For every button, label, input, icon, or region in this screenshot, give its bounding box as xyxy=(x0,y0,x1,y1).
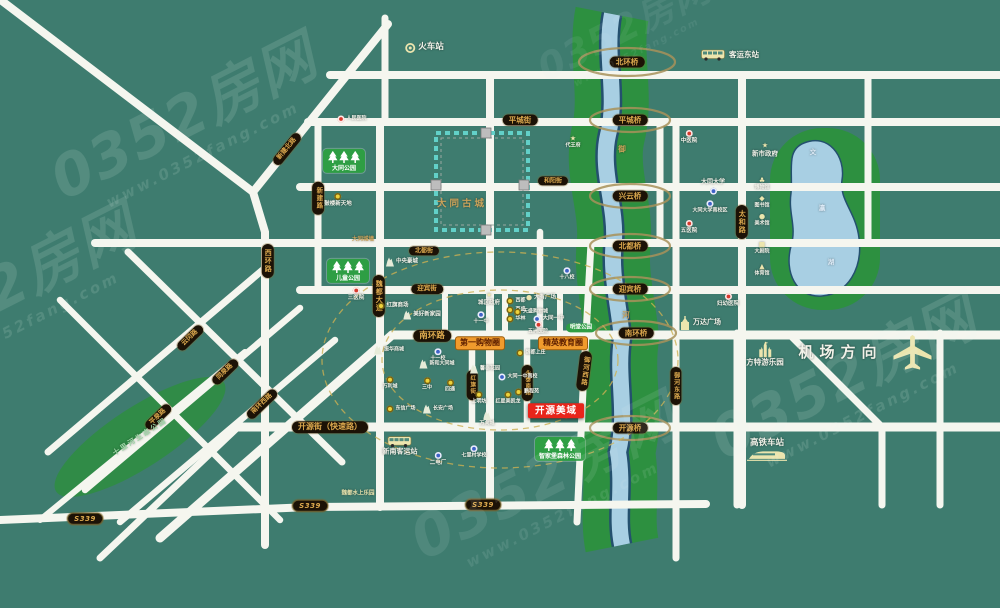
road-nanhuanxilu: 南环西路 xyxy=(245,387,279,420)
poi-new-city-gov: ★新市政府 xyxy=(752,142,778,157)
poi-zhongyiyuan-label: 中医院 xyxy=(681,138,698,144)
poi-wanlicheng: 万利城 xyxy=(382,376,397,390)
poi-university-south-icon xyxy=(706,200,713,207)
river-char-he: 河 xyxy=(622,311,630,320)
poi-wanxiangcheng-label: 万向城 xyxy=(479,421,494,427)
poi-daiwangfu-label: 代王府 xyxy=(565,143,580,149)
park-mingtang: 明堂公园 xyxy=(566,323,596,332)
road-yuhedonglu: 御河东路 xyxy=(670,367,681,405)
poi-renmin-hospital: 人民医院 xyxy=(337,116,366,123)
poi-wuzhou-hospital-label: 五洲医院 xyxy=(528,329,548,335)
fantawild-park-icon xyxy=(756,341,774,357)
poi-tiansheng-mall-icon xyxy=(514,309,521,316)
train-station-icon xyxy=(404,42,416,54)
poi-hualin-label: 华林 xyxy=(515,316,525,322)
poi-daiwangfu: ★代王府 xyxy=(565,135,580,149)
poi-xintai-garden-icon xyxy=(470,365,478,374)
poi-chengqu-gov-label: 城区政府 xyxy=(478,300,500,306)
trees-icon xyxy=(327,151,361,165)
hsr-station-icon xyxy=(747,449,787,463)
poi-pengchengyuan-label: 鹏程苑 xyxy=(524,389,539,395)
poi-hongqi-mall-label: 红旗商场 xyxy=(386,303,408,309)
poi-new-city-gov-label: 新市政府 xyxy=(752,150,778,157)
poi-baisheng-icon xyxy=(506,307,513,314)
park-ertong-label: 儿童公园 xyxy=(336,275,360,282)
poi-renmin-hospital-label: 人民医院 xyxy=(346,116,366,122)
poi-erdianchang-icon xyxy=(434,452,441,459)
road-nanhuanlu: 南环路 xyxy=(413,330,451,342)
poi-shiyizhong-label: 十一中 xyxy=(473,319,488,325)
poi-wanxiangcheng: 万向城 xyxy=(479,411,494,427)
city-wall-label: 大同城墙 xyxy=(352,237,374,244)
poi-datong-university-icon xyxy=(709,187,716,194)
bridge-nanhuanqiao: 南环桥 xyxy=(619,328,654,339)
airport-direction: 机场方向 xyxy=(798,333,933,371)
poi-art-gallery-label: 美术馆 xyxy=(754,221,769,227)
poi-wanlicheng-label: 万利城 xyxy=(382,384,397,390)
bridge-kaiyuanqiao: 开源桥 xyxy=(613,423,648,434)
poi-hongxing-icon xyxy=(504,391,511,398)
bridge-beiduqiao: 北都桥 xyxy=(613,241,648,252)
shield-s339-east: S339 xyxy=(465,499,501,511)
poi-shangmingfang-icon xyxy=(475,391,482,398)
poi-xinhe-datongcheng: 新和大同城 xyxy=(419,360,454,369)
poi-meihao-xinjiayuan-label: 美好新家园 xyxy=(413,312,441,318)
road-xinjianlu: 新建路 xyxy=(312,182,324,215)
park-datong: 大同公园 xyxy=(323,149,365,173)
trees-icon xyxy=(543,439,577,453)
river-char-yu: 御 xyxy=(618,145,626,154)
poi-sitong-icon xyxy=(446,379,453,386)
poi-grand-theater-icon: ■ xyxy=(759,241,766,248)
poi-sanzhong-icon xyxy=(423,377,430,384)
road-yuhexilu: 御河西路 xyxy=(576,350,593,391)
poi-yizhong-south-icon xyxy=(498,374,505,381)
poi-qilicun-school: 七里村学校 xyxy=(461,445,486,459)
poi-zhongyang-haocheng: 中央豪城 xyxy=(386,258,418,267)
poi-hualin-icon xyxy=(506,316,513,323)
poi-university-south: 大同大学南校区 xyxy=(692,200,727,214)
poi-weidu-shangzhuang-label: 魏都上庄 xyxy=(525,350,545,356)
road-heyangjie: 和阳街 xyxy=(538,176,568,185)
poi-yizhong-south: 大同一中南校 xyxy=(498,374,537,381)
road-tongquanlu: 同泉路 xyxy=(210,358,239,387)
wanda-plaza-icon xyxy=(679,316,691,330)
poi-dongxin-plaza: 东信广场 xyxy=(386,406,415,413)
park-zhijiabao: 智家堡森林公园 xyxy=(535,437,585,461)
poi-weidu-shangzhuang: 魏都上庄 xyxy=(516,350,545,357)
poi-zhongyang-haocheng-label: 中央豪城 xyxy=(396,259,418,265)
project-kaiyuanmeiyu: 开源美域 xyxy=(528,403,584,418)
poi-xinhe-datongcheng-icon xyxy=(419,360,427,369)
road-xinjianbeilu: 新建北路 xyxy=(271,131,303,167)
airport-direction-label: 机场方向 xyxy=(798,344,882,361)
poi-tiansheng-mall-label: 天盛购物城 xyxy=(523,309,548,315)
poi-university-south-label: 大同大学南校区 xyxy=(692,208,727,214)
road-kaiyuanjie: 开源街（快速路） xyxy=(292,421,368,433)
poi-wanlicheng-icon xyxy=(386,376,393,383)
road-yongtainanlu: 永泰南路 xyxy=(522,365,533,401)
poi-shiyizhong: 十一中 xyxy=(473,311,488,325)
poi-zhenhua-mall: 振华商城 xyxy=(374,346,404,355)
poi-gulou-xintiandi: 鼓楼新天地 xyxy=(324,193,352,207)
poi-xintai-garden-label: 馨泰花园 xyxy=(480,366,500,372)
poi-erdianchang-label: 二电厂 xyxy=(430,460,447,466)
poi-chengqu-gov-icon: ★ xyxy=(486,292,492,299)
poi-museum-label: 博物馆 xyxy=(754,185,769,191)
poi-hongxing: 红星美凯龙 xyxy=(495,391,520,405)
poi-sanyiyuan: 三医院 xyxy=(348,287,365,301)
poi-fuyou-hospital-label: 妇幼医院 xyxy=(717,301,739,307)
bridge-pingchengqiao: 平城桥 xyxy=(613,115,648,126)
poi-stadium-icon: ▲ xyxy=(759,263,764,270)
airport-direction-icon xyxy=(892,333,934,371)
poi-meihao-xinjiayuan: 美好新家园 xyxy=(403,311,441,320)
park-datong-label: 大同公园 xyxy=(332,165,356,172)
fantawild-park: 方特游乐园 xyxy=(746,341,784,366)
poi-art-gallery: ●美术馆 xyxy=(754,213,769,227)
poi-weidu-waterpark: 魏都水上乐园 xyxy=(341,491,374,498)
east-bus-station-label: 客运东站 xyxy=(729,51,759,59)
south-bus-station: 新南客运站 xyxy=(383,436,418,457)
poi-tiansheng-mall: 天盛购物城 xyxy=(514,309,548,316)
poi-wanxiangcheng-icon xyxy=(483,411,491,420)
poi-zhenhua-mall-label: 振华商城 xyxy=(384,347,404,353)
poi-hongqi-mall: 红旗商场 xyxy=(377,303,408,310)
train-station: 火车站 xyxy=(404,42,444,54)
poi-yizhong-south-label: 大同一中南校 xyxy=(507,374,537,380)
poi-wuzhou-hospital: 五洲医院 xyxy=(528,321,548,335)
poi-art-gallery-icon: ● xyxy=(759,213,765,220)
poi-daiwangfu-icon: ★ xyxy=(570,135,576,142)
poi-zhongyang-haocheng-icon xyxy=(386,258,394,267)
poi-hualin: 华林 xyxy=(506,316,525,323)
park-shilihe: 十里河生态公园 xyxy=(111,416,168,457)
poi-sanzhong: 三中 xyxy=(422,377,432,391)
ancient-city-label: 大同古城 xyxy=(437,198,487,209)
bridge-beihuanqiao: 北环桥 xyxy=(610,57,645,68)
east-bus-station-icon xyxy=(701,49,727,61)
poi-datong-university-label: 大同大学 xyxy=(701,180,725,187)
poi-museum: ♣博物馆 xyxy=(754,177,769,191)
poi-library: ◆图书馆 xyxy=(754,195,769,209)
tag-shopping-circle: 第一购物圈 xyxy=(455,336,505,350)
poi-qilicun-school-label: 七里村学校 xyxy=(461,453,486,459)
poi-stadium-label: 体育馆 xyxy=(754,271,769,277)
poi-wuyiyuan-icon xyxy=(685,220,692,227)
poi-shangmingfang-label: 上明坊 xyxy=(471,399,486,405)
poi-sanzhong-label: 三中 xyxy=(422,385,432,391)
poi-gulou-xintiandi-label: 鼓楼新天地 xyxy=(324,201,352,207)
road-yingbinjie: 迎宾街 xyxy=(411,284,443,294)
poi-sanyiyuan-label: 三医院 xyxy=(348,295,365,301)
poi-sitong-label: 四通 xyxy=(445,387,455,393)
poi-dongxin-plaza-label: 东信广场 xyxy=(395,406,415,412)
poi-changan-plaza-icon xyxy=(423,405,431,414)
road-taihelu: 太和路 xyxy=(736,205,748,239)
shield-s339-west: S339 xyxy=(67,513,103,525)
poi-shiyixiao-icon xyxy=(434,348,441,355)
bridge-xingyunqiao: 兴云桥 xyxy=(613,191,648,202)
poi-changan-plaza-label: 长安广场 xyxy=(433,406,453,412)
poi-new-city-gov-icon: ★ xyxy=(762,142,768,149)
south-bus-station-icon xyxy=(387,436,413,448)
poi-shiyizhong-icon xyxy=(477,311,484,318)
poi-meihao-xinjiayuan-icon xyxy=(403,311,411,320)
hsr-station-label: 高铁车站 xyxy=(750,439,784,448)
poi-grand-theater: ■大剧院 xyxy=(754,241,769,255)
poi-grand-theater-label: 大剧院 xyxy=(754,249,769,255)
park-ertong: 儿童公园 xyxy=(327,259,369,283)
poi-dayou-plaza: ●大有广场 xyxy=(526,295,556,302)
poi-weidu-shangzhuang-icon xyxy=(516,350,523,357)
poi-fuyou-hospital-icon xyxy=(724,293,731,300)
poi-gulou-xintiandi-icon xyxy=(334,193,341,200)
poi-zhenhua-mall-icon xyxy=(374,346,382,355)
shield-s339-mid: S339 xyxy=(292,500,328,512)
poi-shangmingfang: 上明坊 xyxy=(471,391,486,405)
poi-sitong: 四通 xyxy=(445,379,455,393)
wanda-plaza-label: 万达广场 xyxy=(693,319,721,327)
hsr-station: 高铁车站 xyxy=(747,439,787,463)
map-canvas: 0352房网 www.0352fang.com 0352房网 www.0352f… xyxy=(0,0,1000,608)
park-zhijiabao-label: 智家堡森林公园 xyxy=(539,453,581,460)
train-station-label: 火车站 xyxy=(418,43,444,52)
poi-shibaxiao-icon xyxy=(563,267,570,274)
poi-zhongyiyuan-icon xyxy=(685,130,692,137)
poi-dayou-plaza-label: 大有广场 xyxy=(534,295,556,301)
poi-erdianchang: 二电厂 xyxy=(430,452,447,466)
poi-fuyou-hospital: 妇幼医院 xyxy=(717,293,739,307)
poi-zhongyiyuan: 中医院 xyxy=(681,130,698,144)
poi-museum-icon: ♣ xyxy=(759,177,765,184)
lake-char-hu: 湖 xyxy=(828,259,835,267)
poi-xidu-icon xyxy=(506,298,513,305)
road-pingchengjie: 平城街 xyxy=(503,115,538,126)
poi-stadium: ▲体育馆 xyxy=(754,263,769,277)
poi-chengqu-gov: ★城区政府 xyxy=(478,292,500,306)
poi-xinhe-datongcheng-label: 新和大同城 xyxy=(429,361,454,367)
poi-shibaxiao: 十八校 xyxy=(559,267,574,281)
poi-changan-plaza: 长安广场 xyxy=(423,405,453,414)
poi-library-label: 图书馆 xyxy=(754,203,769,209)
poi-hongqi-mall-icon xyxy=(377,303,384,310)
lake-char-wen: 文 xyxy=(810,149,817,157)
lake-char-ying: 瀛 xyxy=(819,205,826,213)
wanda-plaza: 万达广场 xyxy=(679,316,721,330)
poi-renmin-hospital-icon xyxy=(337,116,344,123)
map-labels-layer: 北环桥平城桥兴云桥北都桥迎宾桥南环桥开源桥平城街和阳街北都街迎宾街南环路开源街（… xyxy=(0,0,1000,608)
poi-qilicun-school-icon xyxy=(470,445,477,452)
road-weidudadao: 魏都大道 xyxy=(373,275,385,317)
poi-datong-university: 大同大学 xyxy=(701,180,725,195)
poi-xidu-label: 西都 xyxy=(515,298,525,304)
road-beidujie: 北都街 xyxy=(409,246,439,255)
east-bus-station: 客运东站 xyxy=(701,49,759,61)
poi-dayou-plaza-icon: ● xyxy=(526,295,532,302)
tag-education-circle: 精英教育圈 xyxy=(538,336,588,350)
bridge-yingbinqiao: 迎宾桥 xyxy=(613,284,648,295)
poi-shibaxiao-label: 十八校 xyxy=(559,275,574,281)
poi-library-icon: ◆ xyxy=(759,195,764,202)
poi-xidu: 西都 xyxy=(506,298,525,305)
poi-dongxin-plaza-icon xyxy=(386,406,393,413)
poi-xintai-garden: 馨泰花园 xyxy=(470,365,500,374)
poi-wuyiyuan: 五医院 xyxy=(681,220,698,234)
poi-hongxing-label: 红星美凯龙 xyxy=(495,399,520,405)
south-bus-station-label: 新南客运站 xyxy=(383,449,418,457)
trees-icon xyxy=(331,261,365,275)
road-xihuanlu: 西环路 xyxy=(262,244,274,278)
poi-wuzhou-hospital-icon xyxy=(534,321,541,328)
fantawild-park-label: 方特游乐园 xyxy=(746,358,784,366)
poi-wuyiyuan-label: 五医院 xyxy=(681,228,698,234)
road-yunganglu: 云冈路 xyxy=(175,324,204,353)
poi-sanyiyuan-icon xyxy=(352,287,359,294)
